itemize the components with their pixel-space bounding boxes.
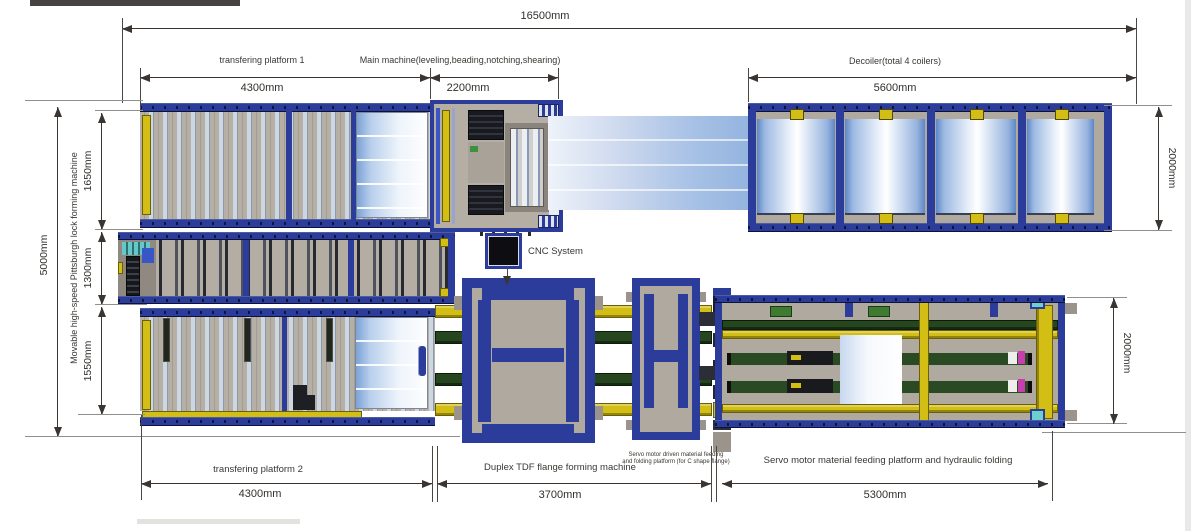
ext-p1-right: [430, 68, 431, 99]
main-machine-bottom-block: [468, 185, 504, 215]
platform1-sheet: [356, 112, 428, 218]
tdf-big-inner-mid-bar: [492, 348, 564, 362]
servo-left-tab-2: [699, 366, 716, 380]
dim-servo-width-text: 2000mm: [1121, 333, 1133, 374]
pittsburgh-head-gear-column: [126, 256, 140, 296]
platform2-slot-1: [163, 318, 170, 362]
platform2-slot-3: [326, 318, 333, 362]
servo-platform-label: Servo motor material feeding platform an…: [764, 455, 1013, 466]
platform1-yellow-bar: [142, 115, 151, 215]
ext-b1: [141, 415, 142, 500]
servo-lane-green-box-1: [770, 306, 792, 317]
ext-mm-right: [558, 68, 559, 99]
dim-decoiler-text: 5600mm: [874, 82, 917, 94]
ext-top-edge-line: [25, 100, 143, 101]
pittsburgh-lane-body: [118, 240, 455, 296]
dim-decoiler: [748, 77, 1136, 78]
dim-main-machine: [430, 77, 558, 78]
decoiler-divider-2: [927, 110, 935, 225]
ext-dec-bottom: [1104, 230, 1172, 231]
pittsburgh-lane-bottom-rail: [118, 296, 455, 304]
tdf-big-inner-bottom-bar: [482, 424, 574, 436]
servo-rail-yellow-bottom: [722, 404, 1058, 413]
servo-note-line1: Servo motor driven material feeding: [622, 452, 729, 459]
ext-row-top-line: [95, 110, 143, 111]
cnc-leader-arrow: [503, 276, 511, 285]
pittsburgh-lane-top-rail: [118, 232, 455, 240]
main-machine-guide-strip: [452, 108, 455, 224]
dim-main-machine-text: 2200mm: [447, 82, 490, 94]
tdf-small-foot-tr: [700, 292, 706, 302]
main-machine-top-block: [468, 110, 504, 140]
ext-dec-left: [748, 68, 749, 102]
servo-note: Servo motor driven material feeding and …: [622, 452, 729, 466]
pittsburgh-lane-end-cap: [448, 236, 455, 300]
coil-2: [845, 119, 925, 215]
platform2-top-rail: [140, 308, 435, 317]
dim-row-middle-text: 1300mm: [82, 248, 94, 289]
duplex-tdf-label: Duplex TDF flange forming machine: [484, 462, 636, 473]
ext-servo-bottom: [1067, 423, 1127, 424]
ext-row-3: [78, 414, 145, 415]
dim-row-middle: [101, 232, 102, 305]
platform2-yellow-bar: [142, 320, 151, 410]
main-machine-green-dot: [470, 146, 478, 152]
servo-white-slot-1: [1008, 352, 1017, 364]
platform2-bracket-step: [307, 395, 315, 410]
main-machine-yellow-bar: [442, 110, 450, 222]
servo-lane-blue-part-1: [845, 303, 853, 317]
servo-right-tab-1: [1065, 303, 1077, 314]
dim-row-bottom-text: 1550mm: [82, 341, 94, 382]
tdf-small-foot-bl: [626, 420, 632, 430]
ext-b6: [1052, 431, 1053, 501]
ext-overall-left: [122, 18, 123, 103]
decoiler-label: Decoiler(total 4 coilers): [849, 56, 941, 66]
coil-1: [757, 119, 835, 215]
decoiler-divider-1: [836, 110, 844, 225]
servo-lane-green-box-2: [868, 306, 890, 317]
platform2-divider: [282, 317, 287, 411]
servo-right-edge: [1058, 303, 1065, 420]
platform1-top-rail: [140, 103, 430, 112]
platform1-label: transfering platform 1: [219, 55, 304, 65]
main-machine-bottom-right-block: [538, 215, 559, 228]
servo-left-tab-1: [699, 312, 716, 326]
servo-magenta-clamp-1: [1018, 351, 1025, 364]
servo-sheet: [840, 335, 902, 407]
tdf-small-inner-right-col: [678, 294, 688, 408]
coil-4: [1027, 119, 1094, 215]
ext-b5: [716, 446, 717, 502]
ext-servo-top: [1067, 297, 1127, 298]
main-machine-panel-slats: [510, 128, 544, 207]
tdf-big-inner-left-col: [478, 300, 491, 422]
steel-strip: [548, 116, 750, 210]
servo-lane-blue-part-2: [990, 303, 998, 317]
dim-duplex-tdf: [437, 483, 711, 484]
dim-overall-length-text: 16500mm: [521, 10, 570, 22]
cnc-leader-line: [507, 266, 508, 276]
dim-platform1-text: 4300mm: [241, 82, 284, 94]
tdf-big-foot-tr: [595, 296, 603, 310]
servo-top-rail: [715, 295, 1065, 303]
servo-left-edge: [715, 303, 722, 420]
scan-artifact-right-band: [1185, 0, 1191, 531]
dim-row-bottom: [101, 307, 102, 415]
dim-platform1: [140, 77, 430, 78]
ext-row-1: [95, 229, 143, 230]
ext-b4: [711, 446, 712, 502]
tdf-small-inner-mid-bar: [650, 350, 678, 362]
dim-duplex-tdf-text: 3700mm: [539, 489, 582, 501]
pittsburgh-head-blue-box: [142, 248, 154, 263]
decoiler-divider-3: [1018, 110, 1026, 225]
servo-white-slot-2: [1008, 380, 1017, 392]
ext-bottom-right-line: [1042, 432, 1186, 433]
platform1-bottom-rail: [140, 219, 430, 228]
ext-b3: [437, 446, 438, 502]
pittsburgh-head-yellow-chip: [118, 262, 123, 274]
dim-servo-width: [1113, 298, 1114, 424]
platform2-slot-2: [244, 318, 251, 362]
servo-end-yellow-bar: [1036, 305, 1053, 419]
platform2-label: transfering platform 2: [213, 464, 303, 475]
dim-overall-width: [57, 107, 58, 437]
dim-decoiler-width-text: 2000mm: [1166, 148, 1178, 189]
ext-b2: [432, 446, 433, 502]
platform1-divider: [286, 109, 292, 222]
servo-right-tab-2: [1065, 410, 1077, 421]
dim-overall-length: [122, 28, 1136, 29]
scan-artifact-top-bar: [30, 0, 240, 6]
cnc-box: [485, 233, 522, 269]
dim-platform2: [141, 483, 432, 484]
layout-drawing: 16500mm transfering platform 1 Main mach…: [0, 0, 1191, 531]
servo-carriage-1-yellow: [791, 355, 801, 360]
cnc-label: CNC System: [528, 246, 583, 257]
dim-row-top-text: 1650mm: [82, 151, 94, 192]
tdf-big-inner-top-bar: [482, 286, 574, 300]
platform2-handle: [418, 346, 426, 376]
tdf-big-foot-br: [595, 406, 603, 420]
dim-decoiler-width: [1158, 107, 1159, 230]
ext-overall-right: [1136, 18, 1137, 104]
dim-servo-platform: [722, 483, 1048, 484]
pittsburgh-lane-divider-1: [243, 240, 249, 296]
tdf-small-foot-br: [700, 420, 706, 430]
decoiler-left-edge: [748, 109, 756, 226]
dim-servo-platform-text: 5300mm: [864, 489, 907, 501]
platform2-bracket: [293, 385, 307, 410]
platform2-bottom-rail: [140, 417, 435, 426]
scan-artifact-bottom-smudge: [137, 519, 300, 524]
ext-bottom-edge-line: [25, 436, 460, 437]
coil-3: [936, 119, 1016, 215]
servo-cross-beam: [919, 298, 929, 424]
servo-rail-green-full-top: [722, 320, 1058, 330]
tdf-big-inner-right-col: [566, 300, 579, 422]
tdf-small-foot-tl: [626, 292, 632, 302]
dim-platform2-text: 4300mm: [239, 488, 282, 500]
servo-note-line2: and folding platform (for C shape flange…: [622, 459, 729, 466]
pittsburgh-label: Movable high-speed Pittsburgh lock formi…: [69, 152, 79, 364]
tdf-big-foot-tl: [454, 296, 462, 310]
servo-carriage-2-yellow: [791, 383, 801, 388]
dim-overall-width-text: 5000mm: [38, 235, 50, 276]
servo-bottom-rail: [715, 420, 1065, 428]
tdf-big-foot-bl: [454, 406, 462, 420]
main-machine-label: Main machine(leveling,beading,notching,s…: [360, 55, 561, 65]
dim-row-top: [101, 113, 102, 230]
ext-dec-top: [1104, 105, 1172, 106]
servo-magenta-clamp-2: [1018, 379, 1025, 392]
pittsburgh-lane-divider-2: [348, 240, 354, 296]
decoiler-right-edge: [1104, 109, 1112, 226]
main-machine-left-strip: [436, 108, 440, 224]
ext-row-2: [95, 304, 147, 305]
ext-p1-left: [140, 68, 141, 110]
